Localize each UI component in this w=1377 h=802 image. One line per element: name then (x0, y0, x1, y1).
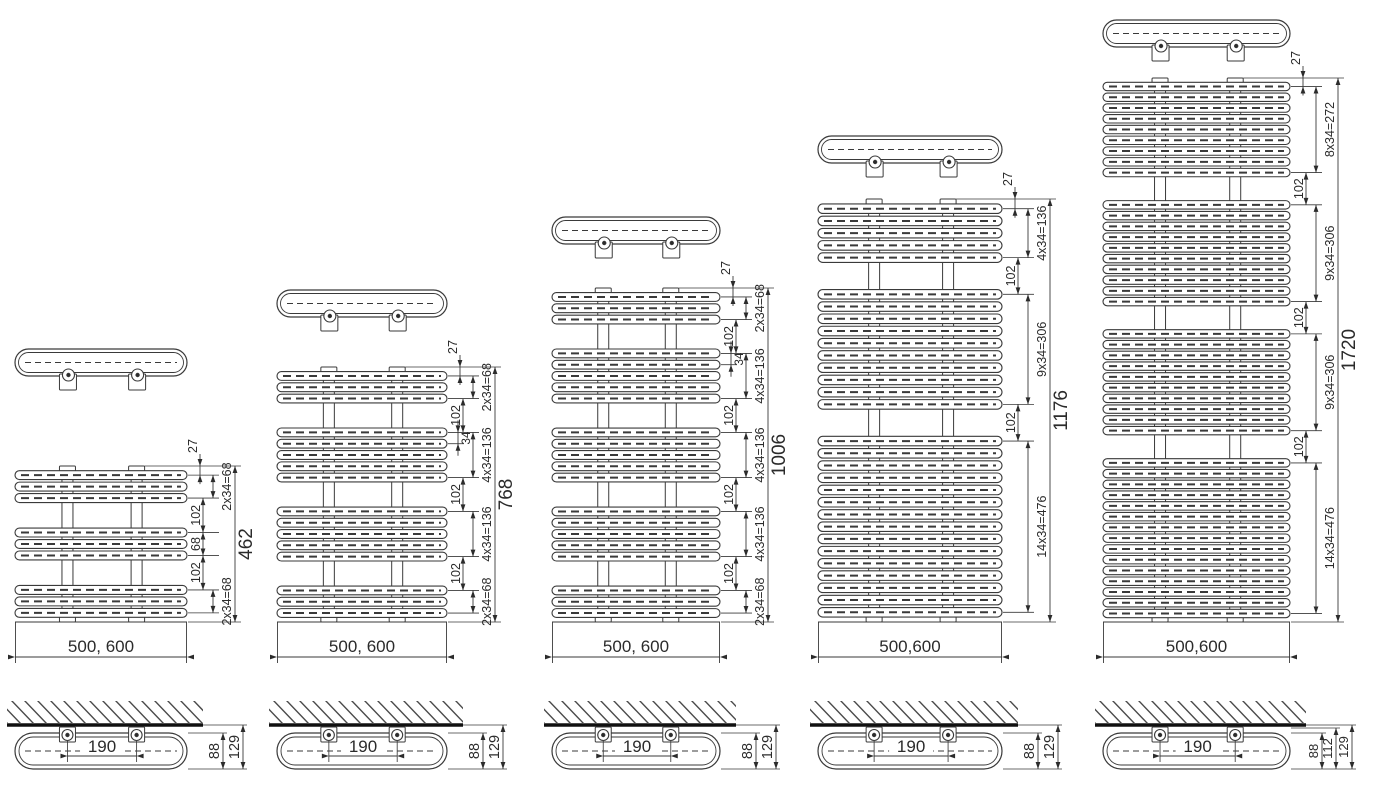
dim-arrow (1314, 166, 1319, 173)
hatch-line (717, 700, 740, 724)
tube (1103, 168, 1290, 176)
dim-arrow (754, 762, 759, 769)
connector-circle (136, 373, 140, 377)
segment-dim-label: 102 (1292, 178, 1306, 199)
dim-arrow (1056, 725, 1061, 732)
dim-arrow (734, 320, 739, 327)
tube (1103, 534, 1290, 542)
tube (1103, 147, 1290, 155)
connector-circle (872, 733, 876, 737)
pitch-dim-label: 34 (461, 431, 473, 444)
hatch-line (50, 700, 73, 724)
hatch-line (1138, 700, 1161, 724)
hatch-line (983, 700, 1006, 724)
dim-arrow (1314, 205, 1319, 212)
hatch-line (338, 700, 361, 724)
hatch-line (1009, 700, 1032, 724)
segment-dim-label: 8x34=272 (1323, 102, 1337, 157)
hatch-line (325, 700, 348, 724)
segment-dim-label: 2x34=68 (480, 578, 494, 626)
tube (1103, 373, 1290, 381)
dim-arrow (1026, 251, 1031, 258)
dim-arrow (270, 655, 277, 660)
dim-arrow (211, 606, 216, 613)
hatch-line (691, 700, 714, 724)
connector-circle (135, 733, 139, 737)
dim-arrow (744, 313, 749, 320)
dim-arrow (744, 511, 749, 518)
dim-arrow (811, 655, 818, 660)
dim-arrow (731, 281, 736, 288)
dim-arrow (1314, 606, 1319, 613)
dim-arrow (241, 762, 246, 769)
dim-arrow (734, 478, 739, 485)
hatch-line (866, 700, 889, 724)
hatch-line (892, 700, 915, 724)
hatch-line (1229, 700, 1252, 724)
hatch-line (548, 700, 571, 724)
segment-dim-label: 102 (722, 326, 736, 347)
tube (1103, 351, 1290, 359)
hatch-line (115, 700, 138, 724)
hatch-line (996, 700, 1019, 724)
bracket-span-label: 190 (349, 737, 377, 756)
hatch-line (561, 700, 584, 724)
side-view-1006: 19088129 (522, 700, 780, 769)
total-depth-label: 129 (760, 735, 776, 759)
depth-label: 88 (1022, 743, 1038, 759)
segment-dim-label: 2x34=68 (480, 363, 494, 411)
dim-arrow (734, 399, 739, 406)
top-offset-label: 27 (186, 439, 200, 453)
hatch-line (905, 700, 928, 724)
connector-circle (1159, 44, 1163, 48)
hatch-line (1151, 700, 1174, 724)
hatch-line (390, 700, 413, 724)
dim-arrow (1016, 287, 1021, 294)
top-offset-label: 27 (1001, 172, 1015, 186)
front-view-1006: 2x34=681024x34=1361024x34=1361024x34=136… (545, 261, 790, 663)
depth-label: 88 (740, 743, 756, 759)
dim-arrow (1016, 258, 1021, 265)
bracket-span-label: 190 (623, 737, 651, 756)
dim-arrow (1026, 397, 1031, 404)
dim-arrow (744, 606, 749, 613)
width-label: 500,600 (879, 637, 940, 656)
dim-arrow (471, 471, 476, 478)
segment-dim-label: 102 (1004, 266, 1018, 287)
hatch-line (1073, 700, 1096, 724)
segment-dim-label: 9x34=306 (1323, 226, 1337, 281)
top-view-1176 (818, 136, 1002, 177)
dim-arrow (545, 655, 552, 660)
dim-arrow (1314, 334, 1319, 341)
dim-arrow (1016, 434, 1021, 441)
hatch-line (128, 700, 151, 724)
dim-arrow (744, 297, 749, 304)
dim-arrow (1048, 199, 1053, 206)
hatch-line (260, 700, 283, 724)
segment-dim-label: 14x34=476 (1035, 496, 1049, 558)
dim-arrow (731, 297, 736, 304)
tube (1103, 599, 1290, 607)
dim-arrow (198, 475, 203, 482)
tube (1103, 222, 1290, 230)
tube (1103, 480, 1290, 488)
top-view-1720 (1103, 20, 1290, 61)
segment-dim-label: 102 (189, 505, 203, 526)
radiator-variant-462: 2x34=68102681022x34=6827462500, 60019088… (0, 349, 257, 769)
bracket-span-label: 190 (897, 737, 925, 756)
hatch-line (312, 700, 335, 724)
hatch-line (1281, 700, 1304, 724)
hatch-line (273, 700, 296, 724)
connector-circle (947, 160, 951, 164)
radiator-variant-1720: 8x34=2721029x34=3061029x34=30610214x34=4… (1073, 20, 1360, 769)
front-view-462: 2x34=68102681022x34=6827462500, 600 (8, 439, 257, 663)
hatch-line (429, 700, 452, 724)
dim-arrow (1314, 295, 1319, 302)
dim-arrow (1056, 762, 1061, 769)
dim-arrow (774, 725, 779, 732)
tube (1103, 233, 1290, 241)
tube (1103, 588, 1290, 596)
hatch-line (167, 700, 190, 724)
depth-label: 88 (1306, 744, 1321, 758)
segment-dim-label: 9x34=306 (1035, 322, 1049, 377)
tube (1103, 512, 1290, 520)
side-view-768: 19088129 (247, 700, 507, 769)
front-view-768: 2x34=681024x34=1361024x34=1361022x34=682… (270, 340, 517, 663)
bracket-span-label: 190 (1183, 737, 1211, 756)
tube (1103, 416, 1290, 424)
dim-arrow (501, 762, 506, 769)
hatch-line (788, 700, 811, 724)
segment-dim-label: 102 (1292, 307, 1306, 328)
dim-arrow (471, 590, 476, 597)
bracket-span-label: 190 (88, 737, 116, 756)
total-depth-label: 129 (1042, 735, 1058, 759)
tube (1103, 491, 1290, 499)
hatch-line (814, 700, 837, 724)
segment-dim-label: 68 (189, 537, 203, 551)
hatch-line (600, 700, 623, 724)
dim-arrow (1314, 87, 1319, 94)
width-label: 500, 600 (329, 637, 395, 656)
dim-arrow (1096, 655, 1103, 660)
segment-dim-label: 2x34=68 (220, 577, 234, 625)
side-view-462: 19088129 (0, 700, 247, 769)
segment-dim-label: 102 (1004, 412, 1018, 433)
hatch-line (403, 700, 426, 724)
hatch-line (76, 700, 99, 724)
tube (1103, 82, 1290, 90)
dim-arrow (744, 550, 749, 557)
hatch-line (141, 700, 164, 724)
hatch-line (154, 700, 177, 724)
segment-dim-label: 4x34=136 (753, 348, 767, 403)
connector-circle (67, 373, 71, 377)
radiator-variant-1176: 4x34=1361029x34=30610214x34=476271176500… (788, 136, 1072, 769)
dim-arrow (1350, 725, 1355, 732)
tube (1103, 297, 1290, 305)
dim-arrow (241, 725, 246, 732)
dim-arrow (461, 399, 466, 406)
dim-arrow (744, 471, 749, 478)
dim-arrow (1013, 209, 1018, 216)
hatch-line (0, 700, 8, 724)
tube (1103, 426, 1290, 434)
dim-arrow (221, 733, 226, 740)
hatch-line (678, 700, 701, 724)
wall-hatch (522, 700, 753, 724)
dim-arrow (481, 733, 486, 740)
dim-arrow (471, 550, 476, 557)
hatch-line (587, 700, 610, 724)
hatch-line (102, 700, 125, 724)
depth-label: 88 (207, 743, 223, 759)
front-view-1176: 4x34=1361029x34=30610214x34=476271176500… (811, 172, 1072, 663)
segment-dim-label: 4x34=136 (480, 427, 494, 482)
front-view-1720: 8x34=2721029x34=3061029x34=30610214x34=4… (1096, 51, 1360, 663)
total-height-label: 768 (496, 479, 517, 511)
wall-hatch (788, 700, 1032, 724)
mid-depth-label: 112 (1320, 738, 1335, 759)
hatch-line (1112, 700, 1135, 724)
connector-circle (396, 314, 400, 318)
segment-dim-label: 4x34=136 (753, 427, 767, 482)
hatch-line (442, 700, 465, 724)
hatch-line (193, 700, 216, 724)
segment-dim-label: 4x34=136 (1035, 205, 1049, 260)
tube (1103, 523, 1290, 531)
hatch-line (1268, 700, 1291, 724)
connector-circle (327, 733, 331, 737)
hatch-line (652, 700, 675, 724)
dim-arrow (211, 491, 216, 498)
technical-drawing-svg: 2x34=68102681022x34=6827462500, 60019088… (0, 0, 1377, 802)
hatch-line (351, 700, 374, 724)
hatch-line (180, 700, 203, 724)
dim-arrow (461, 557, 466, 564)
dim-arrow (211, 590, 216, 597)
hatch-line (299, 700, 322, 724)
tube (1103, 609, 1290, 617)
hatch-line (1190, 700, 1213, 724)
tube (1103, 502, 1290, 510)
dim-arrow (1301, 87, 1306, 94)
connector-circle (1158, 733, 1162, 737)
dim-arrow (211, 475, 216, 482)
tube (1103, 158, 1290, 166)
dim-arrow (1314, 424, 1319, 431)
tube (1103, 115, 1290, 123)
dim-arrow (1036, 733, 1041, 740)
hatch-line (247, 700, 270, 724)
dim-arrow (456, 444, 461, 451)
hatch-line (1099, 700, 1122, 724)
tube (1103, 566, 1290, 574)
connector-circle (873, 160, 877, 164)
segment-dim-label: 102 (722, 405, 736, 426)
hatch-line (1177, 700, 1200, 724)
segment-dim-label: 102 (449, 405, 463, 426)
segment-dim-label: 4x34=136 (753, 506, 767, 561)
hatch-line (918, 700, 941, 724)
wall-hatch (247, 700, 478, 724)
dim-arrow (774, 762, 779, 769)
hatch-line (89, 700, 112, 724)
dim-arrow (1036, 762, 1041, 769)
tube (1103, 555, 1290, 563)
connector-circle (1234, 44, 1238, 48)
segment-dim-label: 2x34=68 (753, 578, 767, 626)
tube (1103, 469, 1290, 477)
hatch-line (455, 700, 478, 724)
dim-arrow (481, 762, 486, 769)
width-label: 500, 600 (603, 637, 669, 656)
tube (1103, 362, 1290, 370)
dim-arrow (720, 655, 727, 660)
tube (1103, 136, 1290, 144)
dim-arrow (1026, 294, 1031, 301)
dim-arrow (729, 365, 734, 372)
dim-arrow (8, 655, 15, 660)
hatch-line (286, 700, 309, 724)
dim-arrow (187, 655, 194, 660)
total-depth-label: 129 (1336, 736, 1351, 758)
top-view-1006 (552, 217, 720, 258)
dim-arrow (201, 555, 206, 562)
hatch-line (801, 700, 824, 724)
segment-dim-label: 2x34=68 (753, 284, 767, 332)
segment-dim-label: 102 (1292, 436, 1306, 457)
tube (1103, 104, 1290, 112)
segment-dim-label: 102 (449, 484, 463, 505)
hatch-line (1164, 700, 1187, 724)
connector-circle (395, 733, 399, 737)
connector-circle (601, 733, 605, 737)
segment-dim-label: 102 (722, 484, 736, 505)
pitch-dim-label: 34 (734, 352, 746, 365)
hatch-line (944, 700, 967, 724)
tube (1103, 330, 1290, 338)
dim-arrow (456, 425, 461, 432)
hatch-line (1307, 700, 1330, 724)
dim-arrow (1334, 762, 1339, 769)
total-height-label: 1006 (769, 434, 790, 476)
dim-arrow (1320, 762, 1325, 769)
dim-arrow (221, 762, 226, 769)
segment-dim-label: 102 (722, 563, 736, 584)
hatch-line (1255, 700, 1278, 724)
dim-arrow (1334, 728, 1339, 735)
hatch-line (0, 700, 21, 724)
total-height-label: 1720 (1339, 329, 1360, 371)
dim-arrow (729, 346, 734, 353)
tube (1103, 244, 1290, 252)
segment-dim-label: 2x34=68 (220, 462, 234, 510)
hatch-line (364, 700, 387, 724)
radiator-dimension-diagram: 2x34=68102681022x34=6827462500, 60019088… (0, 0, 1377, 802)
top-offset-label: 27 (446, 340, 460, 354)
tube (1103, 276, 1290, 284)
connector-circle (1233, 733, 1237, 737)
hatch-line (931, 700, 954, 724)
hatch-line (1203, 700, 1226, 724)
top-view-768 (277, 290, 447, 331)
dim-arrow (458, 360, 463, 367)
width-label: 500,600 (1166, 637, 1227, 656)
total-height-label: 462 (236, 528, 257, 560)
tube (1103, 577, 1290, 585)
tube (1103, 394, 1290, 402)
tube (1103, 405, 1290, 413)
radiator-variant-1006: 2x34=681024x34=1361024x34=1361024x34=136… (522, 217, 790, 769)
tube (1103, 459, 1290, 467)
segment-dim-label: 14x34=476 (1323, 507, 1337, 569)
dim-arrow (1016, 404, 1021, 411)
dim-arrow (471, 511, 476, 518)
dim-arrow (1336, 615, 1341, 622)
hatch-line (613, 700, 636, 724)
tube (1103, 265, 1290, 273)
top-offset-label: 27 (719, 261, 733, 275)
hatch-line (639, 700, 662, 724)
hatch-line (11, 700, 34, 724)
segment-dim-label: 102 (449, 563, 463, 584)
hatch-line (704, 700, 727, 724)
dim-arrow (447, 655, 454, 660)
connector-circle (328, 314, 332, 318)
hatch-line (879, 700, 902, 724)
side-view-1176: 19088129 (788, 700, 1062, 769)
radiator-variant-768: 2x34=681024x34=1361024x34=1361022x34=682… (247, 290, 517, 769)
hatch-line (957, 700, 980, 724)
hatch-line (37, 700, 60, 724)
hatch-line (574, 700, 597, 724)
tube (1103, 287, 1290, 295)
top-view-462 (15, 349, 187, 390)
dim-arrow (1290, 655, 1297, 660)
dim-arrow (458, 376, 463, 383)
dim-arrow (471, 392, 476, 399)
total-depth-label: 129 (227, 735, 243, 759)
total-depth-label: 129 (487, 735, 503, 759)
total-height-label: 1176 (1051, 390, 1072, 431)
dim-arrow (1048, 615, 1053, 622)
connector-circle (946, 733, 950, 737)
hatch-line (1216, 700, 1239, 724)
dim-arrow (744, 590, 749, 597)
hatch-line (840, 700, 863, 724)
dim-arrow (734, 557, 739, 564)
dim-arrow (1314, 463, 1319, 470)
dim-arrow (754, 733, 759, 740)
dim-arrow (471, 606, 476, 613)
hatch-line (1086, 700, 1109, 724)
connector-circle (669, 733, 673, 737)
dim-arrow (1002, 655, 1009, 660)
hatch-line (827, 700, 850, 724)
connector-circle (602, 241, 606, 245)
segment-dim-label: 4x34=136 (480, 506, 494, 561)
dim-arrow (1026, 209, 1031, 216)
wall-hatch (0, 700, 216, 724)
depth-label: 88 (467, 743, 483, 759)
dim-arrow (744, 432, 749, 439)
hatch-line (730, 700, 753, 724)
